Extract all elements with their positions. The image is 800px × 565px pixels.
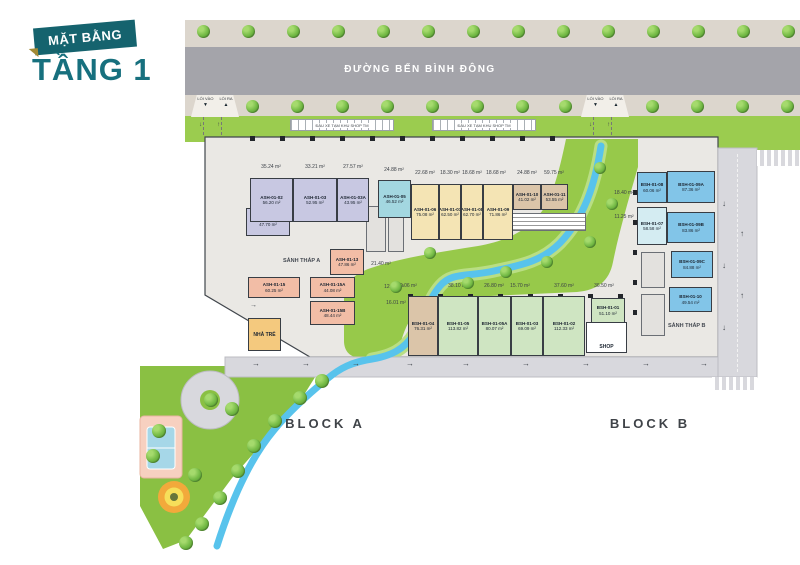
arrow-up-icon: ▲ [614,102,619,108]
sidewalk-inner [185,95,800,118]
temp-parking-label: ĐẬU XE TẠM KHU SHOP TM [313,123,370,128]
unit-area: 80.07 m² [486,326,504,331]
floor-title: TẦNG 1 [32,52,152,88]
unit-area: 58.58 m² [643,226,661,231]
tree-icon [559,100,572,113]
core-room [641,294,665,336]
tree-icon [692,25,705,38]
unit-area: 60.25 m² [265,288,283,293]
tree-icon [381,100,394,113]
unit-ash-01-05: ASH-01-0546.52 m² [378,180,411,218]
unit-area: 112.33 m² [554,326,574,331]
tree-icon [426,100,439,113]
core-room [641,252,665,288]
temp-parking-strip: ĐẬU XE TẠM KHU SHOP TM [432,119,536,131]
unit-ash-01-03a: ASH-01-03A43.95 m² [337,178,369,222]
traffic-arrow-icon: → [302,360,310,368]
shop-room: SHOP [586,322,627,353]
unit-area: 62.50 m² [441,212,459,217]
tree-icon [691,100,704,113]
traffic-arrow-icon: ↑ [740,230,744,238]
unit-area: 51.10 m² [599,311,617,316]
unit-bsh-01-03: BSH-01-0369.09 m² [511,296,543,356]
tree-icon [390,281,402,293]
traffic-arrow-icon: ↓ [589,122,592,128]
tree-icon [541,256,553,268]
unit-area: 46.52 m² [386,199,404,204]
tree-icon [647,25,660,38]
tree-icon [242,25,255,38]
unit-ash-01-11: ASH-01-1153.55 m² [541,184,568,210]
tree-icon [179,536,193,550]
area-label: 18.68 m² [486,170,506,176]
area-label: 15.70 m² [510,283,530,289]
area-label: 22.68 m² [415,170,435,176]
tree-icon [557,25,570,38]
tree-icon [225,402,239,416]
unit-ash-01-06: ASH-01-0675.08 m² [411,184,439,240]
entrance-column: LỐI RA▲ [219,97,232,108]
tree-icon [213,491,227,505]
entrance-column: LỐI VÀO▼ [197,97,213,108]
traffic-arrow-icon: → [250,302,257,309]
unit-bsh-01-05a: BSH-01-05A80.07 m² [478,296,511,356]
area-label: 59.75 m² [544,170,564,176]
unit-bsh-01-07: BSH-01-0758.58 m² [637,207,667,245]
tree-icon [782,25,795,38]
traffic-arrow-icon: → [462,360,470,368]
unit-bsh-01-08: BSH-01-0860.06 m² [637,172,667,203]
playground-center [170,493,178,501]
tree-icon [781,100,794,113]
unit-area: 52.95 m² [306,200,324,205]
unit-area: 113.82 m² [448,326,468,331]
entrance-lane-line [221,117,222,135]
traffic-arrow-icon: → [700,360,708,368]
entrance-column: LỐI RA▲ [609,97,622,108]
plan-tag-label: MẶT BẰNG [47,27,122,48]
unit-bsh-01-01: BSH-01-0151.10 m² [591,298,625,323]
tree-icon [204,393,218,407]
unit-area: 83.86 m² [682,228,700,233]
traffic-arrow-icon: → [406,360,414,368]
area-label: 33.21 m² [305,164,325,170]
unit-ash-01-09: ASH-01-0971.86 m² [483,184,513,240]
unit-area: 47.86 m² [338,262,356,267]
unit-ash-01-08: ASH-01-0862.70 m² [461,184,483,240]
tree-icon [332,25,345,38]
temp-parking-strip: ĐẬU XE TẠM KHU SHOP TM [290,119,394,131]
tree-icon [291,100,304,113]
traffic-arrow-icon: → [582,360,590,368]
traffic-arrow-icon: ↓ [722,200,726,208]
unit-ash-01-03: ASH-01-0352.95 m² [293,178,337,222]
escalator-bank [506,213,586,231]
arrow-down-icon: ▼ [203,102,208,108]
unit-ash-01-10: ASH-01-1041.02 m² [513,184,541,210]
tree-icon [315,374,329,388]
unit-bsh-01-09c: BSH-01-09C84.88 m² [671,251,713,278]
tree-icon [516,100,529,113]
lobby-tower-a-label: SẢNH THÁP A [283,258,320,264]
area-label: 18.30 m² [440,170,460,176]
unit-area: 44.08 m² [324,288,342,293]
area-label: 24.88 m² [384,167,404,173]
area-label: 24.88 m² [517,170,537,176]
tree-icon [336,100,349,113]
unit-bsh-01-05: BSH-01-05113.82 m² [438,296,478,356]
traffic-arrow-icon: → [642,360,650,368]
traffic-arrow-icon: → [522,360,530,368]
area-label: 11.25 m² [614,214,633,220]
tree-icon [424,247,436,259]
unit-area: 43.95 m² [344,200,362,205]
entrance-lane-line [593,117,594,135]
tree-icon [422,25,435,38]
unit-area: 84.88 m² [683,265,701,270]
tree-icon [197,25,210,38]
tree-icon [287,25,300,38]
entrance-gate: LỐI VÀO▼LỐI RA▲ [191,95,239,117]
arrow-up-icon: ▲ [224,102,229,108]
unit-area: 62.70 m² [463,212,481,217]
traffic-arrow-icon: ↓ [722,262,726,270]
entrance-lane-line [611,117,612,135]
street-name: ĐƯỜNG BẾN BÌNH ĐÔNG [250,64,590,75]
crosswalk [757,150,800,166]
unit-area: 69.09 m² [518,326,536,331]
tree-icon [512,25,525,38]
unit-area: 75.08 m² [416,212,434,217]
traffic-arrow-icon: ↑ [740,292,744,300]
unit-ash-01-13: ASH-01-1347.86 m² [330,249,364,275]
floor-plan-canvas: MẶT BẰNG TẦNG 1 ĐƯỜNG BẾN BÌNH ĐÔNG SẢNH… [0,0,800,565]
entrance-column: LỐI VÀO▼ [587,97,603,108]
traffic-arrow-icon: → [352,360,360,368]
area-label: 16.01 m² [386,300,406,306]
tree-icon [471,100,484,113]
unit-bsh-01-09a: BSH-01-09A87.36 m² [667,171,715,203]
block-b-label: BLOCK B [580,416,720,431]
tree-icon [500,266,512,278]
tree-icon [188,468,202,482]
tree-icon [737,25,750,38]
arrow-down-icon: ▼ [593,102,598,108]
tree-icon [146,449,160,463]
block-a-label: BLOCK A [255,416,395,431]
crosswalk [712,377,757,390]
temp-parking-label: ĐẬU XE TẠM KHU SHOP TM [455,123,512,128]
entrance-lane-line [203,117,204,135]
unit-area: 47.70 m² [259,222,277,227]
unit-bsh-01-10: BSH-01-1049.54 m² [669,287,712,312]
tree-icon [584,236,596,248]
area-label: 18.40 m² [614,190,634,196]
tree-icon [646,100,659,113]
tree-icon [462,277,474,289]
unit-ash-01-07: ASH-01-0762.50 m² [439,184,461,240]
tree-icon [594,162,606,174]
unit-bsh-01-09b: BSH-01-09B83.86 m² [667,212,715,243]
entrance-gate: LỐI VÀO▼LỐI RA▲ [581,95,629,117]
tree-icon [467,25,480,38]
pier-row-top [250,136,570,141]
area-label: 27.57 m² [343,164,363,170]
unit-area: 41.02 m² [518,197,536,202]
unit-area: 71.86 m² [489,212,507,217]
unit-ash-01-15b: ASH-01-15B48.44 m² [310,301,355,325]
tree-icon [293,391,307,405]
traffic-arrow-icon: ↑ [607,122,610,128]
unit-area: 53.55 m² [546,197,564,202]
traffic-arrow-icon: ↓ [199,122,202,128]
tree-icon [377,25,390,38]
area-label: 36.50 m² [594,283,614,289]
unit-ash-01-02: ASH-01-0256.20 m² [250,178,293,222]
area-label: 35.24 m² [261,164,281,170]
lobby-tower-b-label: SẢNH THÁP B [668,323,706,329]
tree-icon [231,464,245,478]
unit-area: 48.44 m² [324,313,342,318]
tree-icon [246,100,259,113]
lane-divider [737,154,738,372]
tree-icon [736,100,749,113]
unit-area: 87.36 m² [682,187,700,192]
unit-bsh-01-04: BSH-01-0476.31 m² [408,296,438,356]
area-label: 37.60 m² [554,283,574,289]
traffic-arrow-icon: → [252,360,260,368]
tree-icon [247,439,261,453]
area-label: 18.68 m² [462,170,482,176]
tree-icon [152,424,166,438]
unit-area: 49.54 m² [682,300,700,305]
area-label: 21.40 m² [371,261,391,267]
tree-icon [195,517,209,531]
traffic-arrow-icon: ↑ [217,122,220,128]
kindergarten-room: NHÀ TRẺ [248,318,281,351]
unit-area: 56.20 m² [263,200,281,205]
unit-area: 60.06 m² [643,188,661,193]
traffic-arrow-icon: ↓ [722,324,726,332]
sidewalk-top [185,20,800,47]
unit-area: 76.31 m² [414,326,432,331]
tree-icon [606,198,618,210]
area-label: 26.80 m² [484,283,504,289]
tree-icon [602,25,615,38]
unit-ash-01-15a: ASH-01-15A44.08 m² [310,277,355,298]
unit-bsh-01-02: BSH-01-02112.33 m² [543,296,585,356]
unit-ash-01-15: ASH-01-1560.25 m² [248,277,300,298]
